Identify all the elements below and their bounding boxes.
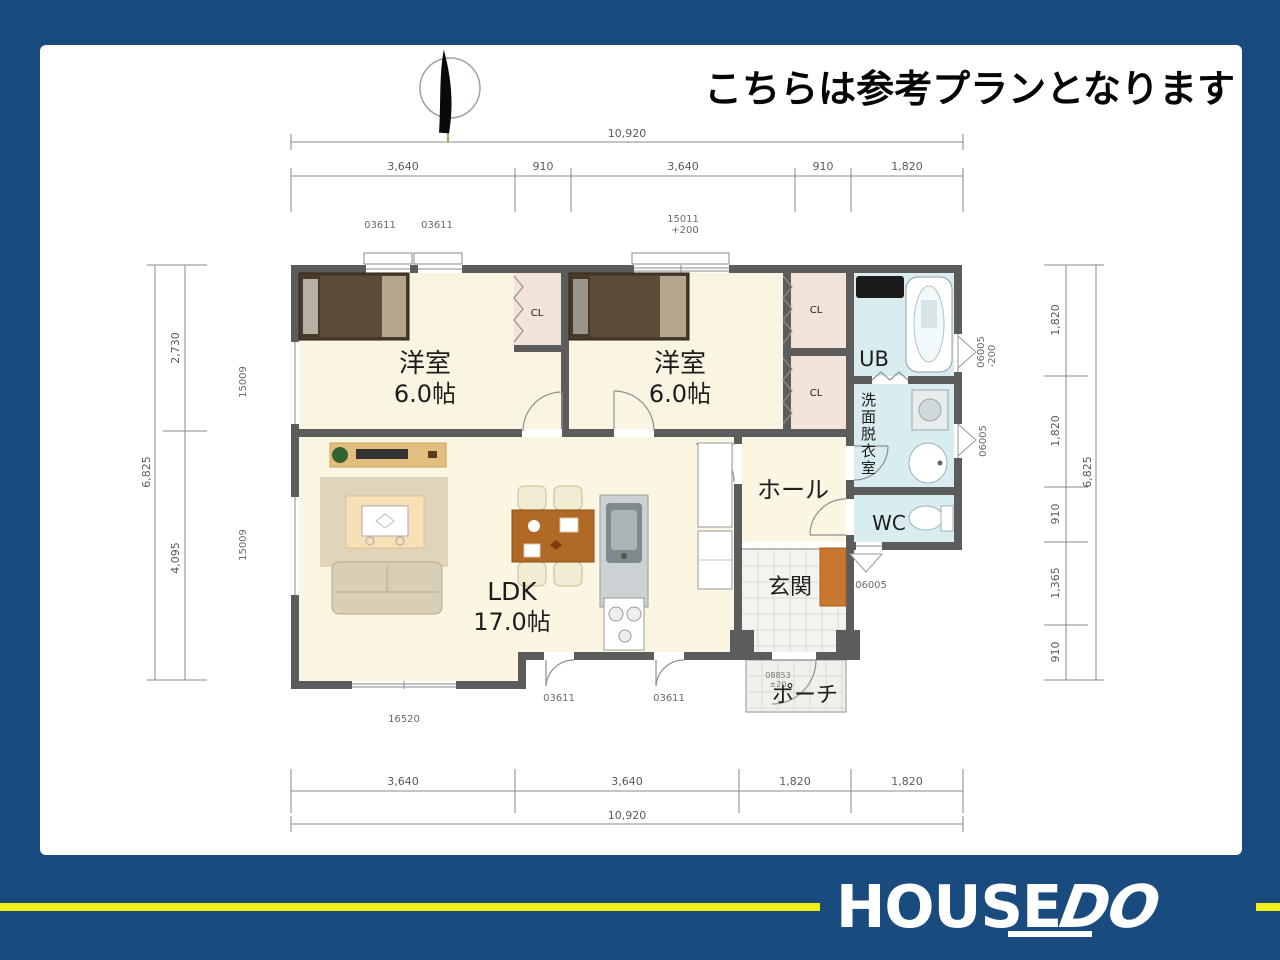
closet1-label: CL — [531, 308, 544, 319]
dim-right-seg5: 910 — [1049, 642, 1062, 663]
entrance-label: 玄関 — [768, 575, 812, 600]
wc-label: WC — [872, 511, 906, 535]
floor-plan-drawing: 洋室 6.0帖 洋室 6.0帖 LDK 17.0帖 ホール 玄関 ポーチ UB … — [0, 0, 1280, 960]
code-right-window2: 06005 — [978, 425, 989, 457]
logo-yellow-line — [0, 903, 820, 911]
kitchen-cabinets — [698, 443, 732, 589]
ldk-size: 17.0帖 — [473, 608, 550, 636]
dim-top-seg3: 3,640 — [667, 160, 699, 173]
bed-room1 — [299, 273, 409, 340]
dim-right-total: 6,825 — [1081, 456, 1094, 488]
code-back-door2: 03611 — [653, 693, 685, 704]
page: { "notice": "こちらは参考プランとなります", "rooms": {… — [0, 0, 1280, 960]
code-top-window3: 15011 — [667, 214, 699, 225]
logo-yellow-dash — [1256, 903, 1280, 911]
code-right-window1-offset: -200 — [987, 345, 998, 368]
code-top-window1: 03611 — [364, 220, 396, 231]
dim-bottom-total: 10,920 — [608, 809, 647, 822]
code-left-window1: 15009 — [238, 366, 249, 398]
hall-label: ホール — [757, 476, 829, 504]
washing-machine — [912, 390, 948, 430]
bedroom2-label: 洋室 — [654, 349, 706, 379]
tv-board — [330, 443, 446, 467]
ldk-label: LDK — [487, 577, 537, 606]
code-entry-door-offset: ±20 — [770, 680, 787, 689]
dim-left-seg2: 4,095 — [169, 542, 182, 574]
housedo-logo: HOUSEDO — [836, 872, 1158, 941]
code-back-door1: 03611 — [543, 693, 575, 704]
toilet — [909, 506, 953, 531]
dim-top-total: 10,920 — [608, 127, 647, 140]
bedroom1-size: 6.0帖 — [394, 380, 456, 408]
code-entry-door: 08853 — [765, 671, 790, 680]
dim-bottom-seg2: 3,640 — [611, 775, 643, 788]
dim-top-seg2: 910 — [533, 160, 554, 173]
bedroom1-label: 洋室 — [399, 349, 451, 379]
closet3-label: CL — [810, 388, 823, 399]
dim-top-seg5: 1,820 — [891, 160, 923, 173]
washroom-label: 洗面脱衣室 — [859, 392, 877, 477]
closet2-label: CL — [810, 305, 823, 316]
dim-bottom-seg4: 1,820 — [891, 775, 923, 788]
wash-basin — [909, 443, 947, 483]
code-wc-window: 06005 — [855, 580, 887, 591]
dim-left-seg1: 2,730 — [169, 332, 182, 364]
dim-top-seg1: 3,640 — [387, 160, 419, 173]
code-top-window2: 03611 — [421, 220, 453, 231]
dim-right-seg3: 910 — [1049, 504, 1062, 525]
bath-label: UB — [859, 347, 889, 371]
compass-icon — [420, 50, 480, 142]
kitchen-counter — [600, 495, 648, 650]
living-rug-table — [320, 477, 448, 567]
shoe-cabinet — [820, 548, 846, 606]
dim-right-seg1: 1,820 — [1049, 304, 1062, 336]
dim-right-seg2: 1,820 — [1049, 415, 1062, 447]
dim-right-seg4: 1,365 — [1049, 567, 1062, 599]
code-living-window: 16520 — [388, 714, 420, 725]
dim-bottom-seg1: 3,640 — [387, 775, 419, 788]
dim-bottom-seg3: 1,820 — [779, 775, 811, 788]
dim-left-total: 6,825 — [140, 456, 153, 488]
sofa — [332, 562, 442, 614]
bed-room2 — [569, 273, 689, 340]
logo-underline — [1008, 931, 1092, 937]
code-top-window3-offset: +200 — [671, 225, 698, 236]
bedroom2-size: 6.0帖 — [649, 380, 711, 408]
code-right-window1: 06005 — [976, 336, 987, 368]
code-left-window2: 15009 — [238, 529, 249, 561]
dim-top-seg4: 910 — [813, 160, 834, 173]
